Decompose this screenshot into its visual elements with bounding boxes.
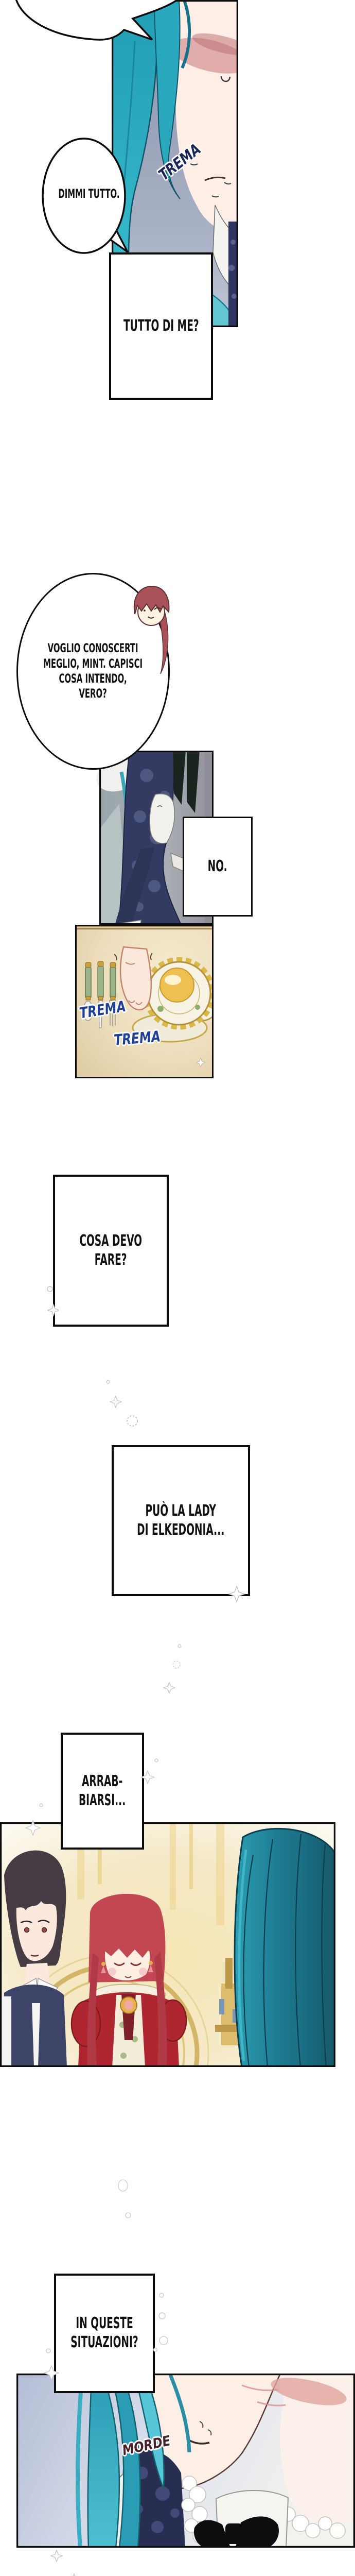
- woman-blush-right: [139, 1968, 147, 1976]
- speech-bubble-top: [0, 0, 247, 62]
- sparkle-icon: [116, 2178, 136, 2225]
- speech-text: PUÒ LA LADY DI ELKEDONIA...: [137, 1502, 224, 1539]
- speech-text: IN QUESTE SITUAZIONI?: [70, 2314, 138, 2352]
- sparkle-icon: [152, 2289, 173, 2356]
- sparkle-icon: [41, 2343, 62, 2384]
- chibi-redhead-icon: [126, 577, 177, 680]
- chibi-eye-left: [144, 609, 146, 612]
- sparkle-icon: [162, 1641, 193, 1698]
- woman-blush-left: [108, 1968, 116, 1976]
- damask-motif: [230, 240, 236, 245]
- speech-bubble-dimmi-text: DIMMI TUTTO.: [43, 187, 125, 201]
- speech-box-tutto-di-me: TUTTO DI ME?: [109, 252, 213, 400]
- speech-box-no: NO.: [183, 817, 253, 917]
- speech-box-in-queste: IN QUESTE SITUAZIONI?: [54, 2274, 155, 2393]
- sparkle-icon: [25, 1799, 50, 1840]
- speech-text: NO.: [208, 857, 227, 876]
- woman-puff-sleeve-left: [72, 2001, 100, 2046]
- speech-text: COSA DEVO FARE?: [80, 1232, 143, 1269]
- sparkle-icon: [226, 1584, 247, 1605]
- sparkle-icon: [140, 1754, 166, 1790]
- character-teal-haired-back: [235, 1828, 335, 2067]
- speech-box-cosa-devo-fare: COSA DEVO FARE?: [53, 1175, 169, 1327]
- man-sleeve: [0, 1996, 11, 2067]
- speech-text: DIMMI TUTTO.: [58, 187, 109, 201]
- sparkle-icon: [43, 1284, 59, 1320]
- man-eye-left: [25, 1928, 29, 1933]
- brooch-gem: [125, 2000, 133, 2010]
- speech-text: TUTTO DI ME?: [123, 317, 199, 336]
- comic-page: DIMMI TUTTO. TREMA TUTTO DI ME? VOGLIO C…: [0, 0, 355, 2576]
- woman-bangs: [100, 1894, 156, 1958]
- sparkle-icon: [102, 1376, 143, 1432]
- panel-ballroom-trio: [0, 1822, 335, 2067]
- speech-box-arrabbiarsi: ARRAB- BIARSI...: [61, 1733, 144, 1850]
- sparkle-icon: [47, 2547, 88, 2576]
- damask-motif: [228, 265, 235, 271]
- speech-text: ARRAB- BIARSI...: [79, 1772, 126, 1810]
- man-eye-right: [42, 1928, 47, 1933]
- damask-motif: [232, 294, 237, 299]
- panel-chin-closeup: [16, 2374, 355, 2548]
- speech-box-puo-la-lady: PUÒ LA LADY DI ELKEDONIA...: [112, 1445, 250, 1596]
